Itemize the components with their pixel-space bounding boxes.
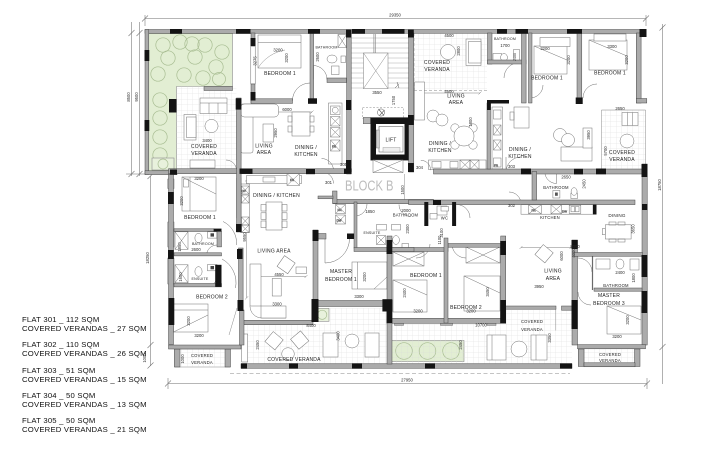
svg-text:VERANDA: VERANDA: [609, 157, 635, 163]
svg-text:3650: 3650: [631, 224, 636, 234]
svg-text:3400: 3400: [202, 138, 212, 143]
svg-text:3200: 3200: [413, 309, 423, 314]
svg-text:VERANDA: VERANDA: [191, 151, 217, 157]
svg-text:AREA: AREA: [449, 100, 464, 106]
svg-text:3300: 3300: [272, 302, 282, 307]
svg-text:3200: 3200: [566, 55, 571, 65]
svg-text:6000: 6000: [559, 251, 564, 261]
svg-text:301: 301: [325, 180, 333, 185]
svg-text:3200: 3200: [625, 315, 630, 325]
svg-text:27950: 27950: [401, 378, 413, 383]
svg-text:8400: 8400: [306, 323, 316, 328]
svg-text:5700: 5700: [603, 146, 608, 156]
svg-text:2600: 2600: [315, 52, 320, 62]
svg-text:COVERED: COVERED: [191, 353, 213, 358]
svg-text:3200: 3200: [194, 333, 204, 338]
svg-text:LIVING: LIVING: [447, 94, 465, 100]
svg-text:DINING /: DINING /: [509, 147, 531, 153]
svg-text:OV: OV: [242, 189, 246, 193]
svg-text:2300: 2300: [405, 224, 410, 234]
svg-text:305: 305: [340, 162, 348, 167]
svg-text:BATHROOM: BATHROOM: [603, 283, 629, 288]
svg-text:3200: 3200: [284, 53, 289, 63]
svg-text:ENSUITE: ENSUITE: [364, 231, 381, 235]
svg-text:2400: 2400: [513, 53, 517, 61]
svg-text:FLAT 305 _ 50 SQM: FLAT 305 _ 50 SQM: [22, 416, 96, 425]
svg-text:3200: 3200: [179, 196, 184, 206]
svg-text:BATHROOM: BATHROOM: [315, 46, 337, 50]
svg-text:FLAT 304 _ 50 SQM: FLAT 304 _ 50 SQM: [22, 391, 96, 400]
svg-text:3300: 3300: [354, 294, 364, 299]
svg-text:FLAT 303 _ 51 SQM: FLAT 303 _ 51 SQM: [22, 366, 96, 375]
svg-text:BEDROOM 1: BEDROOM 1: [264, 71, 296, 77]
svg-text:LIVING: LIVING: [255, 144, 273, 150]
svg-text:1700: 1700: [500, 43, 510, 48]
svg-text:4000: 4000: [571, 248, 576, 258]
svg-text:18250: 18250: [145, 252, 150, 264]
svg-text:MASTER: MASTER: [598, 293, 620, 299]
svg-text:COVERED: COVERED: [609, 150, 635, 156]
svg-text:3350: 3350: [547, 333, 552, 343]
svg-text:302: 302: [508, 203, 516, 208]
svg-text:COVERED VERANDAS _ 27 SQM: COVERED VERANDAS _ 27 SQM: [22, 324, 147, 333]
svg-text:1800: 1800: [468, 117, 473, 127]
svg-text:VERANDA: VERANDA: [521, 327, 543, 332]
svg-text:4500: 4500: [444, 33, 454, 38]
svg-text:LIFT: LIFT: [385, 138, 396, 144]
svg-text:3400: 3400: [336, 331, 341, 341]
svg-text:COVERED: COVERED: [521, 319, 543, 324]
svg-text:3200: 3200: [612, 334, 622, 339]
svg-text:COVERED VERANDAS _ 26 SQM: COVERED VERANDAS _ 26 SQM: [22, 349, 147, 358]
svg-text:BATHROOM: BATHROOM: [494, 37, 516, 41]
svg-text:6000: 6000: [282, 107, 292, 112]
svg-text:29350: 29350: [389, 13, 401, 18]
svg-text:COVERED VERANDA: COVERED VERANDA: [267, 357, 321, 363]
svg-text:3200: 3200: [273, 48, 283, 53]
svg-text:AREA: AREA: [546, 276, 561, 282]
svg-text:1850: 1850: [365, 209, 375, 214]
svg-text:FLAT 301 _ 112 SQM: FLAT 301 _ 112 SQM: [22, 315, 99, 324]
svg-text:303: 303: [508, 164, 516, 169]
svg-text:3275: 3275: [253, 56, 258, 66]
svg-text:8500: 8500: [126, 92, 131, 102]
svg-text:2600: 2600: [191, 247, 201, 252]
svg-text:BEDROOM 2: BEDROOM 2: [196, 295, 228, 301]
svg-text:KITCHEN: KITCHEN: [540, 215, 560, 220]
svg-text:LIVING AREA: LIVING AREA: [257, 249, 291, 255]
svg-text:BATHROOM: BATHROOM: [393, 213, 419, 218]
svg-text:DINING /: DINING /: [429, 141, 451, 147]
svg-text:2450: 2450: [582, 179, 587, 189]
svg-text:2800: 2800: [456, 46, 461, 56]
svg-text:BATHROOM: BATHROOM: [543, 185, 569, 190]
svg-text:3950: 3950: [586, 130, 591, 140]
svg-text:2400: 2400: [402, 288, 407, 298]
svg-text:BLOCK B: BLOCK B: [345, 179, 394, 195]
svg-text:2950: 2950: [273, 128, 278, 138]
svg-text:8000: 8000: [570, 244, 580, 249]
svg-text:18750: 18750: [657, 179, 662, 191]
svg-text:2650: 2650: [561, 175, 571, 180]
svg-text:4550: 4550: [274, 272, 284, 277]
svg-text:4500: 4500: [444, 89, 454, 94]
svg-text:2450: 2450: [255, 340, 260, 350]
svg-text:9550: 9550: [242, 232, 247, 242]
svg-text:MASTER: MASTER: [330, 269, 352, 275]
svg-text:COVERED VERANDAS _ 15 SQM: COVERED VERANDAS _ 15 SQM: [22, 375, 147, 384]
svg-text:DINING /: DINING /: [295, 145, 317, 151]
svg-text:2000: 2000: [401, 208, 411, 213]
svg-text:1500: 1500: [400, 185, 405, 195]
svg-text:2650: 2650: [615, 106, 625, 111]
svg-text:3950: 3950: [534, 284, 544, 289]
svg-text:COVERED VERANDAS _ 13 SQM: COVERED VERANDAS _ 13 SQM: [22, 400, 147, 409]
svg-text:1600: 1600: [178, 272, 183, 282]
svg-text:VERANDA: VERANDA: [424, 67, 450, 73]
svg-text:3450: 3450: [485, 287, 490, 297]
svg-text:BEDROOM 3: BEDROOM 3: [593, 301, 625, 307]
svg-text:BATHROOM: BATHROOM: [192, 242, 214, 246]
svg-text:2400: 2400: [615, 270, 625, 275]
svg-text:BEDROOM 1: BEDROOM 1: [184, 215, 216, 221]
svg-text:3550: 3550: [372, 90, 382, 95]
svg-text:DW: DW: [337, 219, 342, 223]
svg-text:DINING: DINING: [608, 213, 626, 218]
svg-text:AREA: AREA: [257, 150, 272, 156]
svg-text:2450: 2450: [458, 340, 463, 350]
svg-text:3200: 3200: [362, 272, 367, 282]
svg-text:VERANDA: VERANDA: [599, 358, 621, 363]
svg-text:1750: 1750: [391, 95, 396, 105]
svg-text:1800: 1800: [631, 273, 636, 283]
svg-text:304: 304: [416, 165, 424, 170]
svg-text:COVERED: COVERED: [191, 144, 217, 150]
svg-text:3200: 3200: [540, 46, 550, 51]
svg-text:WC: WC: [441, 216, 448, 221]
svg-text:10700: 10700: [475, 323, 487, 328]
svg-text:COVERED: COVERED: [424, 60, 450, 66]
svg-text:KITCHEN: KITCHEN: [428, 148, 452, 154]
svg-text:3200: 3200: [466, 309, 476, 314]
svg-text:ENSUITE: ENSUITE: [192, 277, 209, 281]
svg-text:COVERED VERANDAS _ 21 SQM: COVERED VERANDAS _ 21 SQM: [22, 425, 147, 434]
svg-text:LIVING: LIVING: [544, 269, 562, 275]
svg-text:KITCHEN: KITCHEN: [294, 152, 318, 158]
svg-text:1000: 1000: [180, 354, 185, 364]
svg-text:DW: DW: [562, 210, 567, 214]
svg-text:BEDROOM 1: BEDROOM 1: [325, 277, 357, 283]
svg-text:BEDROOM 1: BEDROOM 1: [410, 273, 442, 279]
svg-text:3200: 3200: [194, 176, 204, 181]
svg-text:3200: 3200: [186, 316, 191, 326]
svg-text:3200: 3200: [624, 55, 629, 65]
svg-text:BEDROOM 1: BEDROOM 1: [594, 71, 626, 77]
svg-text:1850: 1850: [177, 242, 182, 252]
svg-text:BEDROOM 1: BEDROOM 1: [531, 76, 563, 82]
svg-text:FLAT 302 _ 110 SQM: FLAT 302 _ 110 SQM: [22, 340, 99, 349]
svg-text:KITCHEN: KITCHEN: [508, 154, 532, 160]
svg-text:COVERED: COVERED: [599, 352, 621, 357]
svg-text:3300: 3300: [607, 44, 617, 49]
svg-text:DINING / KITCHEN: DINING / KITCHEN: [253, 193, 300, 199]
svg-text:9500: 9500: [134, 92, 139, 102]
svg-text:VERANDA: VERANDA: [191, 360, 213, 365]
svg-text:3100: 3100: [439, 228, 444, 238]
